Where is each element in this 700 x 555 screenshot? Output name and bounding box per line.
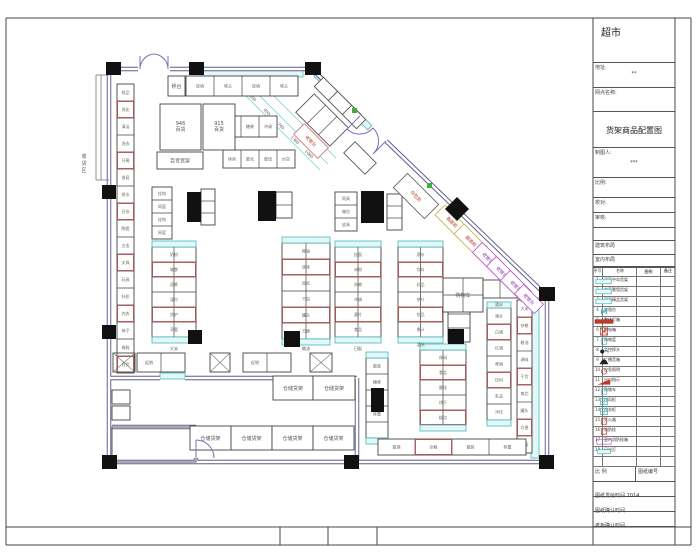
legend-row: 13冷风柜 bbox=[593, 397, 675, 407]
plan-label: 陶瓷 bbox=[122, 225, 130, 231]
legend-row-note bbox=[661, 417, 675, 426]
plan-label: 牙膏 bbox=[122, 157, 130, 163]
plan-label: 挂钩 bbox=[158, 190, 166, 196]
scale-label: 比例: bbox=[593, 178, 675, 186]
shelf-run bbox=[201, 189, 215, 225]
plan-label: 日杂 bbox=[122, 208, 130, 214]
plan-label: 酒水 bbox=[417, 341, 425, 347]
back-room bbox=[112, 427, 196, 462]
plan-label: 休闲 bbox=[439, 354, 447, 360]
plan-label: 散装 bbox=[373, 363, 381, 369]
plan-label: 称台 bbox=[171, 83, 181, 90]
plan-label: 挂面 bbox=[354, 251, 362, 257]
legend-cyanpat-icon bbox=[593, 407, 615, 416]
plan-label: 促销 bbox=[252, 83, 260, 89]
legend-redbar-icon bbox=[593, 317, 615, 326]
plan-label: 奶粉 bbox=[170, 251, 178, 257]
plan-label: 酒水 bbox=[417, 251, 425, 257]
legend-redsm-icon bbox=[593, 427, 615, 436]
plan-label: 大米 bbox=[170, 345, 178, 351]
plan-label: 袜子 bbox=[122, 327, 130, 333]
structural-column bbox=[539, 287, 555, 301]
plan-label: 杂粮 bbox=[430, 444, 438, 450]
plan-label: 皮具 bbox=[342, 221, 350, 227]
plan-label: 箱包 bbox=[342, 208, 350, 214]
plan-label: 促销 bbox=[145, 359, 153, 365]
legend-row-note bbox=[661, 337, 675, 346]
wall-highlight-band bbox=[160, 373, 185, 379]
plan-label: 糕点 bbox=[439, 414, 447, 420]
door-swing bbox=[154, 54, 168, 69]
structural-column bbox=[344, 455, 359, 469]
legend-blank-icon bbox=[593, 457, 615, 466]
drafter-value: *** bbox=[593, 156, 675, 166]
legend-row-note bbox=[661, 357, 675, 366]
plan-label: 玩具 bbox=[122, 276, 130, 282]
legend-header-cell: 序号 bbox=[593, 268, 603, 276]
plan-label: 日配 bbox=[354, 346, 362, 351]
plan-label: 粮油 bbox=[521, 339, 529, 345]
plan-label: 饼干 bbox=[439, 399, 447, 405]
plan-label: 堆头 bbox=[280, 83, 288, 89]
plan-label: 麦片 bbox=[354, 311, 362, 317]
plan-label: 仓储货架 bbox=[200, 435, 220, 442]
legend-row: 8监控探头 bbox=[593, 347, 675, 357]
plan-label: 干货 bbox=[302, 296, 310, 302]
legend-m-icon: M bbox=[593, 307, 615, 316]
cross-box bbox=[310, 353, 332, 372]
plan-label: 饮品 bbox=[417, 311, 425, 317]
plan-label: 辅食 bbox=[170, 266, 178, 272]
drawing-sheet: 60095076013601060纸品洗化清洁洗衣牙膏香皂纸巾日杂陶瓷五金文具玩… bbox=[0, 0, 700, 555]
legend-cyanpat-icon bbox=[593, 397, 615, 406]
legend-cyanbar-icon bbox=[593, 447, 615, 456]
plan-label: 米粉 bbox=[354, 266, 362, 272]
legend-cyanrect-icon bbox=[593, 277, 615, 286]
door-sensor-mark bbox=[352, 108, 357, 113]
plan-label: 仓储货架 bbox=[283, 385, 303, 392]
address-value: ** bbox=[593, 71, 675, 77]
plan-label: 仓储货架 bbox=[324, 385, 344, 392]
legend-row-note bbox=[661, 397, 675, 406]
interior-pillar bbox=[258, 191, 276, 221]
legend-row-note bbox=[661, 347, 675, 356]
plan-label: 南北 bbox=[521, 390, 529, 396]
legend-row: 7购物篮 bbox=[593, 337, 675, 347]
drawing-title: 货架商品配置图 bbox=[593, 112, 675, 136]
door-sensor-mark bbox=[427, 183, 432, 188]
legend-row: 17室内消防栓箱 bbox=[593, 437, 675, 447]
structural-column bbox=[305, 62, 321, 75]
legend-cam-icon bbox=[593, 347, 615, 356]
legend-cyanrect-icon bbox=[593, 297, 615, 306]
legend-row: 5整体灯箱 bbox=[593, 317, 675, 327]
plan-label: 950 bbox=[263, 107, 272, 116]
drafter-label: 制图人: bbox=[593, 148, 675, 156]
plan-label: 网篮 bbox=[158, 203, 166, 209]
plan-label: 方便 bbox=[302, 328, 310, 334]
plan-label: 食品 bbox=[354, 326, 362, 332]
plan-label: 网篮 bbox=[158, 229, 166, 235]
audit-label: 审核: bbox=[593, 213, 675, 221]
plan-label: 仓储货架 bbox=[323, 435, 343, 442]
title-block-field: 比 例图纸编号 bbox=[593, 467, 675, 482]
legend-row: 11出口指示 bbox=[593, 377, 675, 387]
plan-label: 购物车 bbox=[455, 292, 470, 299]
plan-label: 炒货 bbox=[282, 156, 290, 162]
plan-label: 冲调 bbox=[264, 123, 272, 129]
legend-cyansm-icon bbox=[593, 387, 615, 396]
plan-label: 膨化 bbox=[246, 156, 254, 162]
shelf-run bbox=[276, 192, 292, 218]
legend-header-cell: 名称 bbox=[603, 268, 637, 276]
legend-cyanrect-icon bbox=[593, 287, 615, 296]
legend-row: 15灭火器 bbox=[593, 417, 675, 427]
legend-row: 2单面靠墙货架 bbox=[593, 287, 675, 297]
structural-column bbox=[189, 62, 204, 75]
legend-row-note bbox=[661, 427, 675, 436]
plan-label: 促销 bbox=[196, 83, 204, 89]
plan-label: 洗化 bbox=[122, 106, 130, 112]
plan-label: 清洁 bbox=[122, 123, 130, 129]
interior-pillar bbox=[361, 191, 384, 223]
door-swing bbox=[373, 128, 386, 154]
plan-label: 茶叶 bbox=[417, 296, 425, 302]
plan-label: 香皂 bbox=[122, 174, 130, 180]
plan-label: 乳品 bbox=[495, 393, 503, 399]
plan-label: 膨化 bbox=[439, 384, 447, 390]
legend-row: 18日光灯 bbox=[593, 447, 675, 457]
plan-label: 收 bbox=[81, 153, 86, 160]
plan-label: 五金 bbox=[122, 242, 130, 248]
legend-redsm-icon bbox=[593, 417, 615, 426]
plan-label: 粮油 bbox=[302, 248, 310, 254]
site-label: 网点名称: bbox=[593, 88, 675, 96]
legend-row-note bbox=[661, 367, 675, 376]
plan-label: 酒水 bbox=[495, 301, 503, 307]
plan-label: 仓储货架 bbox=[282, 435, 302, 442]
store-title: 超市 bbox=[593, 18, 675, 39]
plan-label: 乳品 bbox=[417, 281, 425, 287]
legend-row: 9广播音箱 bbox=[593, 357, 675, 367]
plan-label: 洗护 bbox=[170, 311, 178, 317]
sheet-number-cell: 图纸编号 bbox=[636, 467, 658, 481]
plan-label: 调味 bbox=[521, 356, 529, 362]
legend-magbox-icon bbox=[593, 437, 615, 446]
plan-label: 干货 bbox=[521, 373, 529, 379]
legend-row-note bbox=[661, 457, 675, 466]
plan-label: 纸巾 bbox=[122, 191, 130, 197]
plan-label: 百货货架 bbox=[170, 158, 190, 165]
plan-label: 杂粮 bbox=[354, 281, 362, 287]
plan-label: 食品 bbox=[439, 369, 447, 375]
plan-label: 冲饮 bbox=[495, 409, 503, 415]
plan-label: 果汁 bbox=[417, 326, 425, 332]
legend-row-note bbox=[661, 407, 675, 416]
legend-row: 6配电箱 bbox=[593, 327, 675, 337]
plan-label: 罐头 bbox=[302, 312, 310, 318]
plan-label: 仓储货架 bbox=[241, 435, 261, 442]
plan-label: 915百货 bbox=[214, 121, 224, 133]
interior-pillar bbox=[187, 192, 201, 222]
legend-row-note bbox=[661, 317, 675, 326]
plan-label: 调味 bbox=[302, 264, 310, 270]
plan-label: 糖果 bbox=[373, 379, 381, 385]
structural-column bbox=[102, 455, 117, 469]
plan-label: 方便 bbox=[521, 424, 529, 430]
plan-label: 文具 bbox=[122, 259, 130, 265]
plan-label: 促销 bbox=[251, 359, 259, 365]
check-label: 校对: bbox=[593, 198, 675, 206]
plan-label: 760 bbox=[277, 121, 286, 130]
plan-label: 休闲 bbox=[228, 156, 236, 162]
legend-row-note bbox=[661, 287, 675, 296]
arch-layout-label: 建筑布局 bbox=[593, 241, 675, 249]
structural-column bbox=[102, 325, 116, 339]
title-block-field: 图纸发给时间 2014 bbox=[593, 482, 675, 497]
plan-label: 货 bbox=[81, 160, 86, 167]
interior-pillar bbox=[284, 331, 300, 347]
legend-row: 4收银台M bbox=[593, 307, 675, 317]
plan-label: 区 bbox=[81, 168, 86, 174]
legend-row-note bbox=[661, 307, 675, 316]
legend-header-cell: 备注 bbox=[661, 268, 675, 276]
interior-pillar bbox=[448, 329, 464, 344]
plan-label: 饮料 bbox=[417, 266, 425, 272]
interior-layout-label: 室内布局 bbox=[593, 255, 675, 263]
legend-cyansm-icon bbox=[593, 337, 615, 346]
shelf-box bbox=[112, 406, 130, 420]
legend-row-note bbox=[661, 327, 675, 336]
plan-label: 冲调 bbox=[354, 296, 362, 302]
shelf-box bbox=[112, 390, 130, 404]
legend-speaker-icon bbox=[593, 357, 615, 366]
plan-label: 内衣 bbox=[122, 310, 130, 316]
address-label: 地址: bbox=[593, 63, 675, 71]
plan-label: 散装 bbox=[467, 444, 475, 450]
interior-pillar bbox=[371, 388, 384, 412]
plan-label: 洗衣 bbox=[122, 140, 130, 146]
legend-redflag-icon bbox=[593, 377, 615, 386]
plan-label: 雨具 bbox=[342, 195, 350, 201]
plan-label: 糖果 bbox=[246, 123, 254, 129]
plan-label: 酒水 bbox=[495, 313, 503, 319]
legend-row: 1双面中岛货架 bbox=[593, 277, 675, 287]
legend-row: 3双面精品货架 bbox=[593, 297, 675, 307]
plan-label: 散酒 bbox=[393, 444, 401, 450]
svg-text:M: M bbox=[600, 307, 607, 316]
legend-row bbox=[593, 457, 675, 467]
legend-row-note bbox=[661, 297, 675, 306]
plan-label: 啤酒 bbox=[495, 361, 503, 367]
title-block-field: 图纸确认时间 bbox=[593, 497, 675, 512]
legend-redx-icon bbox=[593, 327, 615, 336]
plan-label: 纸品 bbox=[122, 89, 130, 95]
plan-label: 拖鞋 bbox=[122, 344, 130, 350]
door-swing bbox=[140, 54, 154, 69]
legend-row: 10应急照明 bbox=[593, 367, 675, 377]
plan-label: 红酒 bbox=[495, 345, 503, 351]
legend-header-row: 序号名称图例备注 bbox=[593, 267, 675, 277]
shelf-run bbox=[387, 194, 402, 230]
legend-row-note bbox=[661, 387, 675, 396]
plan-label: 946百货 bbox=[175, 121, 185, 133]
time-field-label: 老板确认时间 bbox=[593, 522, 625, 529]
diagonal-counter bbox=[344, 142, 377, 175]
plan-label: 湿巾 bbox=[170, 296, 178, 302]
structural-column bbox=[102, 185, 116, 199]
legend-redcirc-icon bbox=[593, 367, 615, 376]
legend-row: 12购物车 bbox=[593, 387, 675, 397]
plan-label: 饮料 bbox=[495, 377, 503, 383]
legend-row-note bbox=[661, 437, 675, 446]
cross-box bbox=[210, 353, 230, 372]
plan-label: 称重 bbox=[504, 444, 512, 450]
plan-label: 蜜饯 bbox=[264, 156, 272, 162]
plan-label: 挂钩 bbox=[158, 216, 166, 222]
plan-label: 孕婴 bbox=[170, 326, 178, 332]
plan-label: 罐头 bbox=[521, 407, 529, 413]
legend-row: 16消防栓 bbox=[593, 427, 675, 437]
plan-label: 粮油 bbox=[302, 345, 310, 351]
legend-row-note bbox=[661, 277, 675, 286]
plan-label: 堆头 bbox=[224, 83, 232, 89]
title-block-field: 老板确认时间 bbox=[593, 512, 675, 527]
legend-row-note bbox=[661, 377, 675, 386]
plan-label: 杂粮 bbox=[521, 322, 529, 328]
legend-row: 14冷冻柜 bbox=[593, 407, 675, 417]
legend-row-note bbox=[661, 447, 675, 456]
structural-column bbox=[539, 455, 554, 469]
plan-label: 尿裤 bbox=[170, 281, 178, 287]
interior-pillar bbox=[188, 330, 202, 344]
plan-label: 白酒 bbox=[495, 329, 503, 335]
legend-header-cell: 图例 bbox=[637, 268, 661, 276]
plan-label: 南北 bbox=[302, 280, 310, 286]
plan-label: 针织 bbox=[122, 293, 130, 299]
scale-cell: 比 例 bbox=[593, 467, 636, 481]
structural-column bbox=[106, 62, 121, 75]
